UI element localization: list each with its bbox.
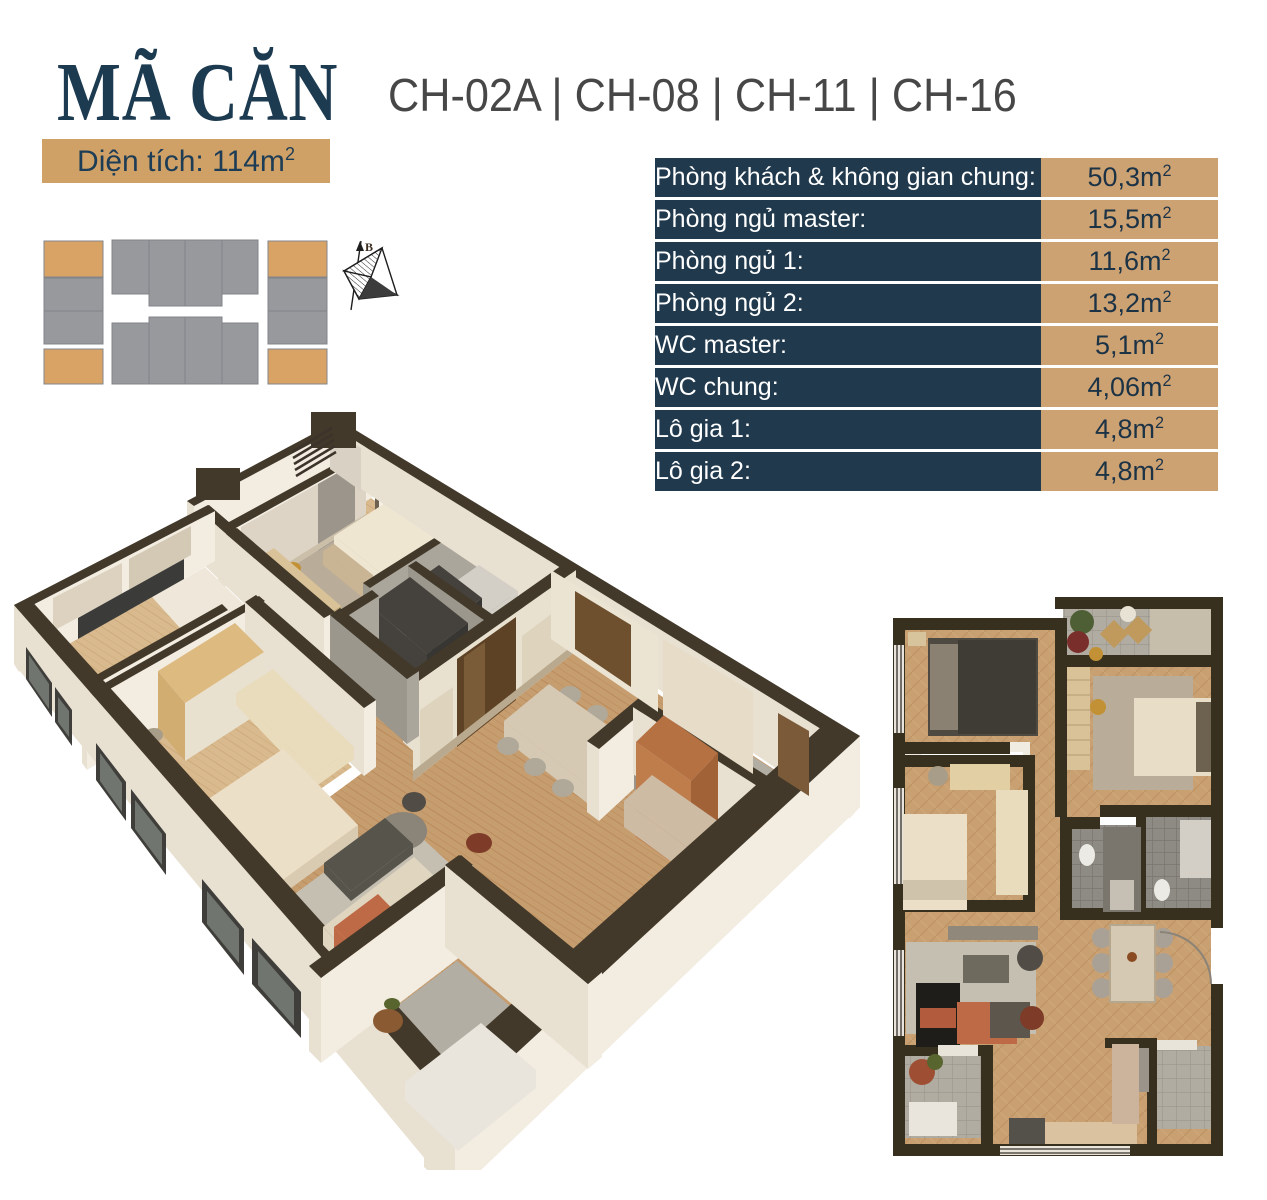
svg-text:B: B [365,240,373,254]
